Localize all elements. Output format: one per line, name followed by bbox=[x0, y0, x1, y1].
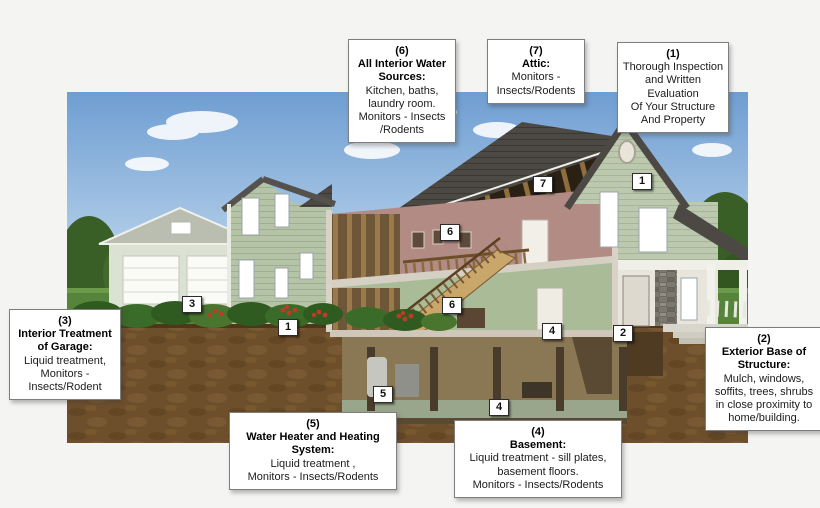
number-marker-4: 4 bbox=[489, 399, 509, 416]
number-marker-3: 3 bbox=[182, 296, 202, 313]
callout-title: Basement: bbox=[458, 439, 618, 452]
callout-number: (5) bbox=[233, 418, 393, 431]
house-cutaway-photo bbox=[67, 92, 748, 443]
callout-title: All Interior Water Sources: bbox=[352, 58, 452, 84]
callout-box-1: (1) Thorough Inspection and Written Eval… bbox=[617, 42, 729, 133]
callout-box-7: (7) Attic: Monitors - Insects/Rodents bbox=[487, 39, 585, 104]
callout-box-5: (5) Water Heater and Heating System: Liq… bbox=[229, 412, 397, 490]
callout-number: (4) bbox=[458, 426, 618, 439]
number-marker-4: 4 bbox=[542, 323, 562, 340]
number-marker-6: 6 bbox=[442, 297, 462, 314]
callout-body: Mulch, windows, soffits, trees, shrubs i… bbox=[709, 373, 819, 426]
callout-title: Interior Treatment of Garage: bbox=[13, 328, 117, 354]
house-cutaway-scene bbox=[67, 92, 748, 443]
callout-number: (6) bbox=[352, 45, 452, 58]
cutaway-basement bbox=[342, 337, 627, 424]
callout-body: Thorough Inspection and Written Evaluati… bbox=[621, 61, 725, 127]
number-marker-1: 1 bbox=[632, 173, 652, 190]
callout-box-2: (2) Exterior Base of Structure: Mulch, w… bbox=[705, 327, 820, 431]
number-marker-6: 6 bbox=[440, 224, 460, 241]
callout-number: (2) bbox=[709, 333, 819, 346]
callout-box-4: (4) Basement: Liquid treatment - sill pl… bbox=[454, 420, 622, 498]
number-marker-7: 7 bbox=[533, 176, 553, 193]
callout-body: Liquid treatment , Monitors - Insects/Ro… bbox=[233, 458, 393, 484]
callout-body: Monitors - Insects/Rodents bbox=[491, 71, 581, 97]
stone-pillar bbox=[655, 270, 677, 326]
callout-body: Kitchen, baths, laundry room. Monitors -… bbox=[352, 85, 452, 138]
entry-door bbox=[623, 276, 649, 326]
callout-number: (1) bbox=[621, 48, 725, 61]
callout-title: Attic: bbox=[491, 58, 581, 71]
callout-title: Exterior Base of Structure: bbox=[709, 346, 819, 372]
porch-window bbox=[681, 278, 697, 320]
number-marker-5: 5 bbox=[373, 386, 393, 403]
gable-oval-vent bbox=[619, 141, 635, 163]
porch-band bbox=[618, 260, 748, 270]
callout-box-6: (6) All Interior Water Sources: Kitchen,… bbox=[348, 39, 456, 143]
number-marker-2: 2 bbox=[613, 325, 633, 342]
sill-plate bbox=[330, 330, 627, 337]
furnace bbox=[395, 364, 419, 397]
callout-body: Liquid treatment, Monitors - Insects/Rod… bbox=[13, 355, 117, 395]
main-house-left bbox=[223, 179, 335, 324]
callout-body: Liquid treatment - sill plates, basement… bbox=[458, 452, 618, 492]
callout-box-3: (3) Interior Treatment of Garage: Liquid… bbox=[9, 309, 121, 400]
callout-title: Water Heater and Heating System: bbox=[233, 431, 393, 457]
number-marker-1: 1 bbox=[278, 319, 298, 336]
callout-number: (3) bbox=[13, 315, 117, 328]
second-floor-studs bbox=[330, 214, 400, 282]
basement-bench bbox=[522, 382, 552, 398]
callout-number: (7) bbox=[491, 45, 581, 58]
infographic-canvas: 3166714254 (6) All Interior Water Source… bbox=[0, 0, 820, 508]
garage-gable-window bbox=[171, 222, 191, 234]
